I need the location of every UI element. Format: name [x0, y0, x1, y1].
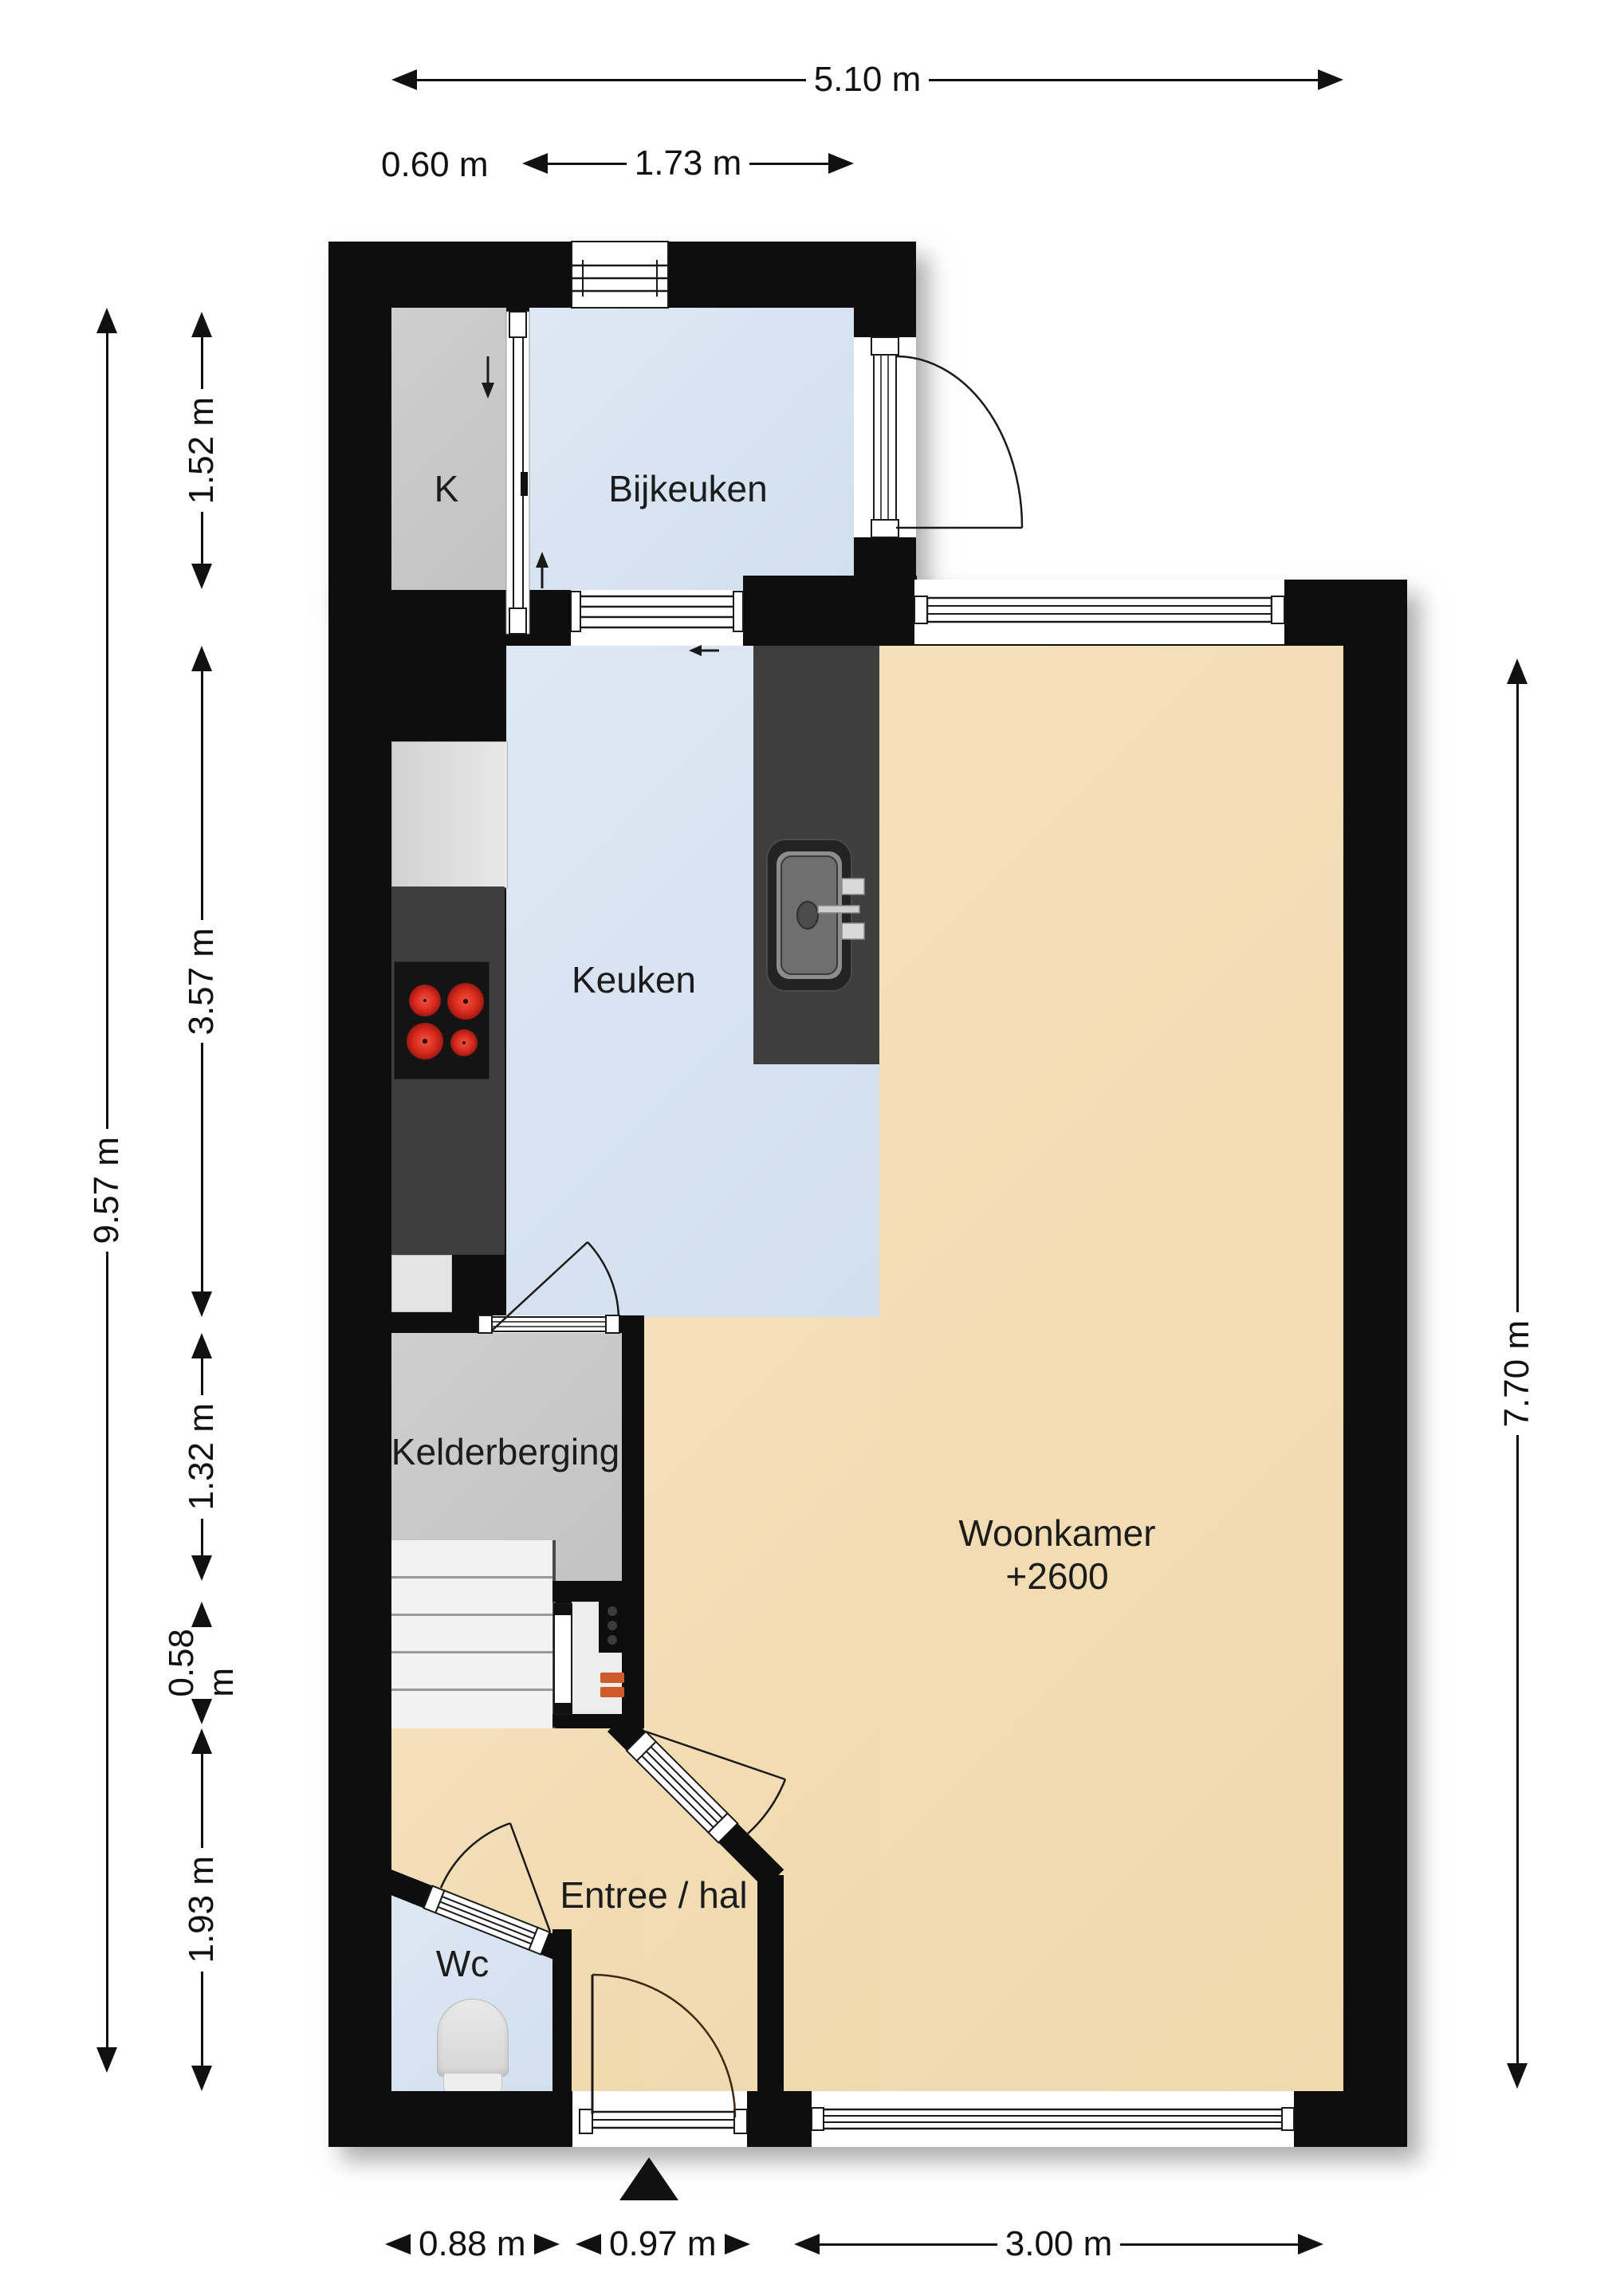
arrow-down-icon — [191, 1699, 212, 1724]
arrow-down-icon — [191, 564, 212, 589]
wall — [854, 242, 916, 337]
arrow-down-icon — [191, 2066, 212, 2091]
arrow-right-icon — [534, 2234, 560, 2255]
wall-bottom — [747, 2091, 812, 2147]
dimension-value: 1.73 m — [627, 143, 750, 183]
wall-bottom — [328, 2091, 572, 2147]
arrow-up-icon — [96, 308, 117, 333]
dimension-value: 1.52 m — [182, 389, 222, 513]
dimension-woonkamer-width: 3.00 m — [794, 2227, 1323, 2262]
arrow-up-icon — [191, 1333, 212, 1358]
dimension-top-total: 5.10 m — [391, 62, 1343, 97]
arrow-down-icon — [191, 1291, 212, 1317]
stove-icon — [394, 961, 490, 1079]
woonkamer-floor — [873, 646, 1343, 2091]
arrow-up-icon — [191, 1602, 212, 1627]
arrow-right-icon — [1298, 2234, 1323, 2255]
dimension-value: 0.88 m — [411, 2224, 534, 2264]
arrow-up-icon — [191, 312, 212, 337]
arrow-left-icon — [576, 2234, 601, 2255]
stair-tread — [388, 1651, 552, 1653]
dimension-bijkeuken-width: 1.73 m — [522, 146, 854, 181]
dimension-left-total: 9.57 m — [88, 308, 126, 2073]
toilet-icon — [437, 1999, 509, 2077]
burner-icon — [447, 983, 484, 1020]
dimension-value: 0.58 m — [162, 1627, 242, 1699]
wall-kelder-top — [385, 1315, 478, 1333]
arrow-right-icon — [725, 2234, 750, 2255]
room-label-kelderberging: Kelderberging — [386, 1430, 625, 1473]
dimension-value: 1.93 m — [182, 1848, 222, 1972]
wall-wc-right — [552, 1929, 572, 2091]
room-label-woonkamer: Woonkamer +2600 — [914, 1512, 1201, 1598]
arrow-left-icon — [794, 2234, 820, 2255]
wall-left — [328, 242, 391, 2147]
room-label-entree: Entree / hal — [534, 1873, 773, 1917]
room-label-k: K — [415, 467, 478, 510]
arrow-up-icon — [1507, 659, 1528, 684]
arrow-down-icon — [96, 2047, 117, 2073]
room-label-bijkeuken: Bijkeuken — [568, 467, 808, 510]
wall — [743, 576, 917, 646]
dimension-k-width: 0.60 m — [373, 145, 497, 185]
dimension-wc-width: 0.88 m — [385, 2227, 572, 2262]
toilet-base — [443, 2073, 502, 2092]
stair-tread — [388, 1614, 552, 1616]
dimension-value: 3.00 m — [997, 2224, 1121, 2264]
wall-right — [1343, 580, 1407, 2147]
dimension-entrance-width: 0.97 m — [576, 2227, 754, 2262]
arrow-up-icon — [191, 1728, 212, 1754]
dimension-bijkeuken-height: 1.52 m — [183, 312, 221, 589]
arrow-down-icon — [1507, 2063, 1528, 2089]
dimension-value: 0.97 m — [601, 2224, 725, 2264]
wall-kelder-bottom — [552, 1581, 643, 1602]
wall-bottom — [1294, 2091, 1407, 2147]
kitchen-counter-sink — [753, 646, 879, 1064]
dimension-entree-height: 1.93 m — [183, 1728, 221, 2091]
woonkamer-ceiling-height: +2600 — [914, 1555, 1201, 1598]
meter-closet-interior — [572, 1602, 627, 1716]
k-room-floor — [391, 308, 506, 590]
wall — [668, 242, 854, 308]
burner-icon — [407, 1023, 443, 1060]
dimension-meterkast-height: 0.58 m — [183, 1602, 221, 1714]
dimension-value: 7.70 m — [1497, 1312, 1537, 1436]
arrow-down-icon — [191, 1555, 212, 1581]
wall — [854, 537, 916, 577]
burner-icon — [450, 1029, 478, 1056]
wall-kelder-right — [622, 1315, 644, 1602]
room-label-keuken: Keuken — [514, 958, 753, 1001]
kitchen-end-cabinet — [391, 1255, 452, 1312]
floor-plan-page: K Bijkeuken Keuken Kelderberging Woonkam… — [0, 0, 1624, 2296]
dimension-value: 9.57 m — [87, 1129, 127, 1252]
bijkeuken-floor — [529, 308, 854, 590]
wall-meter-right — [622, 1602, 643, 1716]
dimension-value: 5.10 m — [806, 60, 930, 100]
arrow-up-icon — [191, 646, 212, 671]
room-label-wc: Wc — [403, 1942, 522, 1985]
arrow-left-icon — [385, 2234, 411, 2255]
dimension-kelderberging-height: 1.32 m — [183, 1333, 221, 1581]
arrow-left-icon — [522, 153, 548, 174]
burner-icon — [409, 985, 441, 1016]
dimension-value: 1.32 m — [182, 1395, 222, 1519]
stair-tread — [388, 1689, 552, 1691]
dimension-woonkamer-height: 7.70 m — [1498, 659, 1536, 2089]
stair-tread — [388, 1576, 552, 1578]
woonkamer-name: Woonkamer — [914, 1512, 1201, 1555]
arrow-right-icon — [1318, 69, 1343, 90]
stairs-icon — [388, 1540, 556, 1728]
arrow-right-icon — [828, 153, 854, 174]
wall-meter-bottom — [552, 1714, 643, 1727]
entrance-arrow-icon — [619, 2157, 678, 2200]
fridge-icon — [391, 741, 508, 888]
dimension-keuken-height: 3.57 m — [183, 646, 221, 1317]
arrow-left-icon — [391, 69, 417, 90]
dimension-value: 3.57 m — [182, 920, 222, 1044]
